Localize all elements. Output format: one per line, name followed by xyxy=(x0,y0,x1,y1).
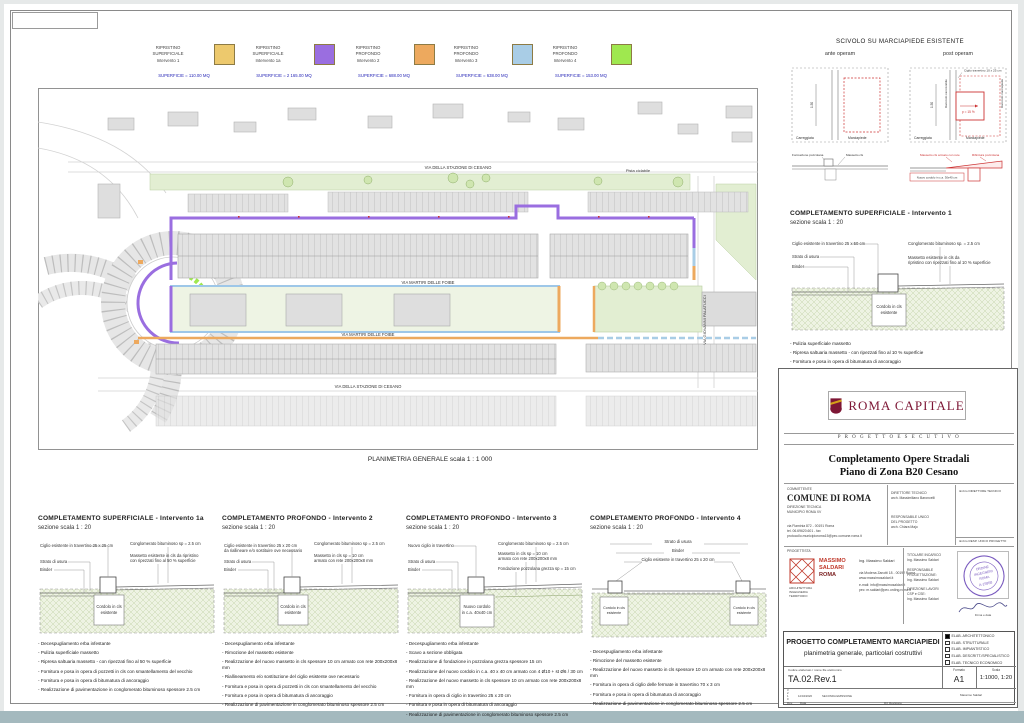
svg-text:Raccordo marciapiede: Raccordo marciapiede xyxy=(1000,79,1004,108)
rev-col-label: Rev. xyxy=(787,702,793,706)
direttore-tecnico-name: arch. Massimiliano Baroncelli xyxy=(891,496,935,501)
svg-text:ripristino con ripezzati fino: ripristino con ripezzati fino al 10 % su… xyxy=(908,260,991,265)
codice-label: Codice elaborato / nome file elettronico xyxy=(788,668,842,672)
svg-text:esistente: esistente xyxy=(881,310,898,315)
section-intervento-1: COMPLETAMENTO SUPERFICIALE - Intervento … xyxy=(790,210,1016,362)
svg-text:Cordolo in cls: Cordolo in cls xyxy=(280,604,305,609)
scivolo-block: SCIVOLO SU MARCIAPIEDE ESISTENTE ante op… xyxy=(782,38,1018,188)
svg-text:Binder: Binder xyxy=(40,567,53,572)
site-plan: VIA DELLA STAZIONE DI CESANO Pista cicla… xyxy=(38,88,758,450)
committente-label: COMMITTENTE xyxy=(787,487,812,492)
elab-row: ELAB. IMPIANTISTICO xyxy=(945,646,1015,653)
checkbox-icon xyxy=(945,660,950,665)
street-label-bottom: VIA DELLA STAZIONE DI CESANO xyxy=(335,384,402,389)
title-table: PROGETTO COMPLETAMENTO MARCIAPIEDI plani… xyxy=(783,631,1015,705)
logo-side3: TERRITORIO xyxy=(789,594,807,598)
data-col-label: Data xyxy=(800,702,806,706)
resp-progettazione-label2: PROGETTAZIONE: xyxy=(907,573,937,578)
legend-label: RIPRISTINOSUPERFICIALEIntervento 1a xyxy=(228,45,308,64)
elab-row: ELAB. TECNICO ECONOMICO xyxy=(945,659,1015,666)
legend-label: RIPRISTINOPROFONDOIntervento 4 xyxy=(525,45,605,64)
svg-text:Cordolo in cls: Cordolo in cls xyxy=(876,304,901,309)
progettista-mail: e-mail: info@massimosaldari.it xyxy=(859,583,905,588)
logo-line3: ROMA xyxy=(819,572,836,579)
scala-label: Scala xyxy=(976,668,1016,672)
legend-swatch-green xyxy=(611,44,632,65)
svg-text:Carreggiata: Carreggiata xyxy=(914,136,932,140)
section-title: COMPLETAMENTO PROFONDO - Intervento 3 xyxy=(406,515,586,522)
committente-addr2: tel. 06.69620.601 - fax xyxy=(787,529,821,534)
svg-text:Cordolo in cls: Cordolo in cls xyxy=(603,606,625,610)
svg-text:esistente: esistente xyxy=(285,610,302,615)
legend-label: RIPRISTINOPROFONDOIntervento 3 xyxy=(426,45,506,64)
section-title: COMPLETAMENTO SUPERFICIALE - Intervento … xyxy=(38,515,218,522)
street-label-right: VIA GIOVANNI PALATUCCI xyxy=(702,295,707,345)
saldari-logo-icon xyxy=(789,558,815,584)
svg-text:p = 15 %: p = 15 % xyxy=(962,110,975,114)
section-intervento-2: COMPLETAMENTO PROFONDO - Intervento 2 se… xyxy=(222,515,402,708)
svg-text:Cordolo in cls: Cordolo in cls xyxy=(733,606,755,610)
section-notes: Decespugliamento erba infestante Scavo a… xyxy=(406,641,586,718)
section-scale: sezione scala 1 : 20 xyxy=(590,525,770,531)
svg-text:Formazione pozzolana: Formazione pozzolana xyxy=(792,153,824,157)
checkbox-checked-icon xyxy=(945,634,950,639)
svg-text:esistente: esistente xyxy=(737,611,751,615)
order-stamp: ORDINE INGEGNERI ROMA A-15958 xyxy=(957,551,1009,599)
direzione-lavori-name: Ing. Massimo Saldari xyxy=(907,597,939,602)
scala-value: 1:1000, 1:20 xyxy=(976,675,1016,682)
elab-row: ELAB. DESCRITT./SPECIALISTICO xyxy=(945,653,1015,660)
svg-text:armato con rete 200x200x8 mm: armato con rete 200x200x8 mm xyxy=(498,556,558,561)
progettista-label: PROGETTISTA xyxy=(787,549,811,554)
section-scale: sezione scala 1 : 20 xyxy=(406,525,586,531)
svg-text:con ripezzati fino al 50 % sup: con ripezzati fino al 50 % superficie xyxy=(130,558,196,563)
svg-text:Conglomerato bituminoso sp = 2: Conglomerato bituminoso sp = 2.5 cm xyxy=(130,541,201,546)
titolare-incarico-name: Ing. Massimo Saldari xyxy=(907,558,939,563)
committente-line2: MUNICIPIO ROMA XV xyxy=(787,510,821,515)
section-drawing: Cordolo in cls esistente Ciglio esistent… xyxy=(222,537,400,637)
legend-label: RIPRISTINOPROFONDOIntervento 2 xyxy=(328,45,408,64)
svg-text:Strato di usura: Strato di usura xyxy=(792,254,820,259)
logo-line2: SALDARI xyxy=(819,565,844,572)
svg-text:Conglomerato bituminoso sp. =: Conglomerato bituminoso sp. = 2.5 cm xyxy=(908,241,980,246)
formato-label: Formato xyxy=(942,668,976,672)
formato-value: A1 xyxy=(942,674,976,685)
svg-text:Rifinitura pozzolana: Rifinitura pozzolana xyxy=(972,153,999,157)
project-subtitle-label: planimetria generale, particolari costru… xyxy=(784,650,942,658)
timbro-dt-label: timbro DIRETTORE TECNICO xyxy=(959,489,1001,493)
firmatario-name: Massimo Saldari xyxy=(960,693,982,697)
checkbox-icon xyxy=(945,647,950,652)
corner-box xyxy=(12,12,98,29)
svg-text:Conglomerato bituminoso sp = 2: Conglomerato bituminoso sp = 2.5 cm xyxy=(498,541,569,546)
section-notes: Decespugliamento erba infestante Rimozio… xyxy=(590,649,770,707)
post-operam-label: post operam xyxy=(910,51,1006,58)
section-drawing: Cordolo in cls esistente Ciglio esistent… xyxy=(38,537,216,637)
checkbox-icon xyxy=(945,641,950,646)
ante-operam-label: ante operam xyxy=(792,51,888,58)
svg-text:Strato di usura: Strato di usura xyxy=(40,559,68,564)
project-main-title-1: Completamento Opere Stradali xyxy=(779,453,1019,466)
elab-row: ELAB. STRUTTURALE xyxy=(945,640,1015,647)
street-label-mid-upper: VIA MARTIRI DELLE FOIBE xyxy=(402,280,455,285)
rup-label2: DEL PROGETTO xyxy=(891,520,917,525)
svg-text:esistente: esistente xyxy=(101,610,118,615)
elab-checkbox-list: ELAB. ARCHITETTONICO ELAB. STRUTTURALE E… xyxy=(945,633,1015,666)
committente-name: COMUNE DI ROMA xyxy=(787,493,871,504)
svg-text:esistente: esistente xyxy=(607,611,621,615)
rev1-desc: SECONDA EMISSIONE xyxy=(822,695,852,699)
svg-text:Nuovo cordolo in c.a. 30x40 cm: Nuovo cordolo in c.a. 30x40 cm xyxy=(917,176,958,180)
progetto-esecutivo-label: P R O G E T T O E S E C U T I V O xyxy=(779,435,1019,441)
svg-text:Strato di usura: Strato di usura xyxy=(408,559,436,564)
section-intervento-4: COMPLETAMENTO PROFONDO - Intervento 4 se… xyxy=(590,515,770,707)
street-label-mid-lower: VIA MARTIRI DELLE FOIBE xyxy=(342,332,395,337)
svg-text:Ciglio esistente in travertino: Ciglio esistente in travertino 25 x 25 c… xyxy=(40,543,114,548)
section-title: COMPLETAMENTO SUPERFICIALE - Intervento … xyxy=(790,210,1016,217)
committente-addr1: via Flaminia 872 - 00191 Roma xyxy=(787,524,834,529)
project-title-label: PROGETTO COMPLETAMENTO MARCIAPIEDI xyxy=(784,639,942,648)
titolare-incarico-label: TITOLARE INCARICO xyxy=(907,553,941,558)
drawing-sheet: RIPRISTINOSUPERFICIALEIntervento 1 SUPER… xyxy=(0,0,1024,723)
svg-text:Ciglio travertino 10 x 25 cm: Ciglio travertino 10 x 25 cm xyxy=(964,68,1002,72)
section-scale: sezione scala 1 : 20 xyxy=(38,525,218,531)
svg-text:in c.a. 40x40 cm: in c.a. 40x40 cm xyxy=(462,610,493,615)
checkbox-icon xyxy=(945,654,950,659)
section-drawing: Nuovo cordolo in c.a. 40x40 cm Nuovo cig… xyxy=(406,537,584,637)
scivolo-title: SCIVOLO SU MARCIAPIEDE ESISTENTE xyxy=(782,38,1018,46)
section-intervento-3: COMPLETAMENTO PROFONDO - Intervento 3 se… xyxy=(406,515,586,717)
committente-addr3: protocollo.municipioroma15@pec.comune.ro… xyxy=(787,534,862,539)
project-main-title-2: Piano di Zona B20 Cesano xyxy=(779,466,1019,479)
logo-line1: MASSIMO xyxy=(819,558,846,565)
signature-area: Firma e data xyxy=(957,601,1009,617)
svg-text:Cordolo in cls: Cordolo in cls xyxy=(96,604,121,609)
svg-text:Ciglio esistente in travertino: Ciglio esistente in travertino 25 x 50 c… xyxy=(792,241,866,246)
rev1-date: 12/04/2020 xyxy=(798,695,812,699)
svg-text:Carreggiata: Carreggiata xyxy=(796,136,814,140)
building-row-1 xyxy=(171,206,694,280)
section-drawing: Strato di usura Binder Ciglio esistente … xyxy=(590,537,768,645)
direzione-lavori-label2: CSP e CSE: xyxy=(907,592,926,597)
section-drawing: Cordolo in cls esistente Ciglio esistent… xyxy=(790,236,1016,332)
rup-name: arch. Chiara Majo xyxy=(891,525,918,530)
svg-text:Massetto cls: Massetto cls xyxy=(846,153,864,157)
svg-text:armato con rete 200x200x8 mm: armato con rete 200x200x8 mm xyxy=(314,558,374,563)
section-scale: sezione scala 1 : 20 xyxy=(790,220,1016,226)
scivolo-drawing: 1.50 Carreggiata Marciapiede p = 15 % Ci… xyxy=(782,62,1018,188)
pista-ciclabile-label: Pista ciclabile xyxy=(626,168,651,173)
svg-text:1.50: 1.50 xyxy=(810,102,814,108)
svg-text:Raccordo carrozzabile: Raccordo carrozzabile xyxy=(944,79,948,108)
section-title: COMPLETAMENTO PROFONDO - Intervento 2 xyxy=(222,515,402,522)
svg-text:Massetto cls armato con rete: Massetto cls armato con rete xyxy=(920,153,960,157)
parking-rows xyxy=(188,192,748,212)
elab-row: ELAB. ARCHITETTONICO xyxy=(945,633,1015,640)
street-label-top: VIA DELLA STAZIONE DI CESANO xyxy=(425,165,492,170)
roma-capitale-text: ROMA CAPITALE xyxy=(848,398,964,414)
progettista-logo: MASSIMO SALDARI ROMA ARCHITETTURA INGEGN… xyxy=(789,556,851,602)
svg-text:A-15958: A-15958 xyxy=(979,580,993,587)
svg-text:Binder: Binder xyxy=(672,548,685,553)
firma-label: Firma e data xyxy=(957,614,1009,618)
svg-text:Strato di usura: Strato di usura xyxy=(224,559,252,564)
legend-label: RIPRISTINOSUPERFICIALEIntervento 1 xyxy=(128,45,208,64)
legend-area: SUPERFICIE = 153.00 MQ xyxy=(521,73,641,78)
roma-capitale-shield-icon xyxy=(829,397,843,415)
svg-text:Fondazione pozzolana grezza sp: Fondazione pozzolana grezza sp = 15 cm xyxy=(498,566,576,571)
progettista-name: Ing. Massimo Saldari xyxy=(859,559,894,564)
timbro-rup-label: timbro RESP. UNICO PROGETTO xyxy=(959,539,1006,543)
section-notes: Decespugliamento erba infestante Rimozio… xyxy=(222,641,402,708)
svg-text:Marciapiede: Marciapiede xyxy=(966,136,985,140)
courtyard-row xyxy=(171,282,756,332)
svg-text:da riallineare e/o sostituire: da riallineare e/o sostituire ove necess… xyxy=(224,548,303,553)
title-block: ROMA CAPITALE P R O G E T T O E S E C U … xyxy=(778,368,1018,708)
section-intervento-1a: COMPLETAMENTO SUPERFICIALE - Intervento … xyxy=(38,515,218,693)
svg-text:Conglomerato bituminoso sp = 2: Conglomerato bituminoso sp = 2.5 cm xyxy=(314,541,385,546)
svg-text:Ciglio esistente in travertino: Ciglio esistente in travertino 25 x 20 c… xyxy=(641,557,715,562)
plan-caption: PLANIMETRIA GENERALE scala 1 : 1 000 xyxy=(320,456,540,464)
progettista-web: www.massimosaldari.it xyxy=(859,576,893,581)
svg-text:Nuovo ciglio in travertino: Nuovo ciglio in travertino xyxy=(408,543,455,548)
section-title: COMPLETAMENTO PROFONDO - Intervento 4 xyxy=(590,515,770,522)
svg-text:Strato di usura: Strato di usura xyxy=(664,539,692,544)
section-notes: Decespugliamento erba infestante Pulizia… xyxy=(38,641,218,693)
resp-progettazione-name: Ing. Massimo Saldari xyxy=(907,578,939,583)
roma-capitale-banner: ROMA CAPITALE xyxy=(828,391,966,420)
section-scale: sezione scala 1 : 20 xyxy=(222,525,402,531)
legend-item-4: RIPRISTINOPROFONDOIntervento 4 SUPERFICI… xyxy=(525,44,637,82)
codice-value: TA.02.Rev.1 xyxy=(788,674,837,685)
direttore-tecnico-label: DIRETTORE TECNICO xyxy=(891,491,927,496)
svg-text:Binder: Binder xyxy=(792,264,805,269)
svg-text:ROMA: ROMA xyxy=(979,575,991,581)
svg-text:1.50: 1.50 xyxy=(930,102,934,108)
svg-text:Binder: Binder xyxy=(224,567,237,572)
svg-text:Nuovo cordolo: Nuovo cordolo xyxy=(463,604,491,609)
rif-col-label: Rif. Revisione xyxy=(884,702,902,706)
svg-text:Binder: Binder xyxy=(408,567,421,572)
svg-text:Marciapiede: Marciapiede xyxy=(848,136,867,140)
